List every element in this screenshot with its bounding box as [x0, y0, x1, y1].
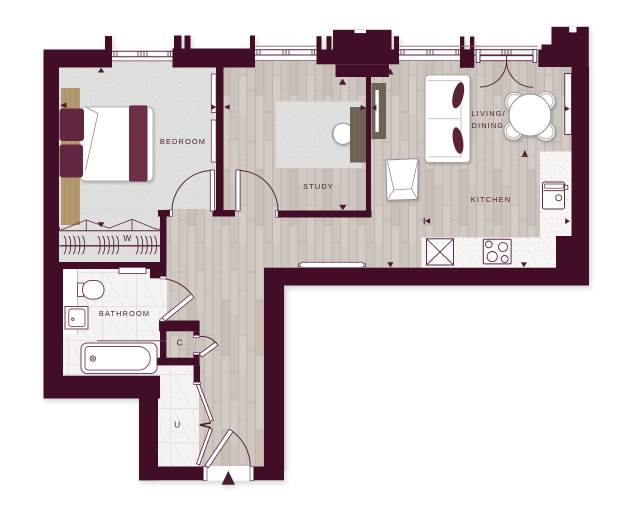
svg-text:DINING: DINING [472, 121, 505, 130]
svg-text:BATHROOM: BATHROOM [99, 309, 150, 318]
svg-text:U: U [174, 420, 181, 430]
svg-text:W: W [123, 233, 132, 243]
svg-text:C: C [177, 337, 184, 347]
svg-text:KITCHEN: KITCHEN [471, 195, 512, 204]
svg-text:BEDROOM: BEDROOM [160, 137, 206, 146]
svg-text:STUDY: STUDY [303, 182, 334, 191]
svg-text:LIVING/: LIVING/ [472, 109, 506, 118]
